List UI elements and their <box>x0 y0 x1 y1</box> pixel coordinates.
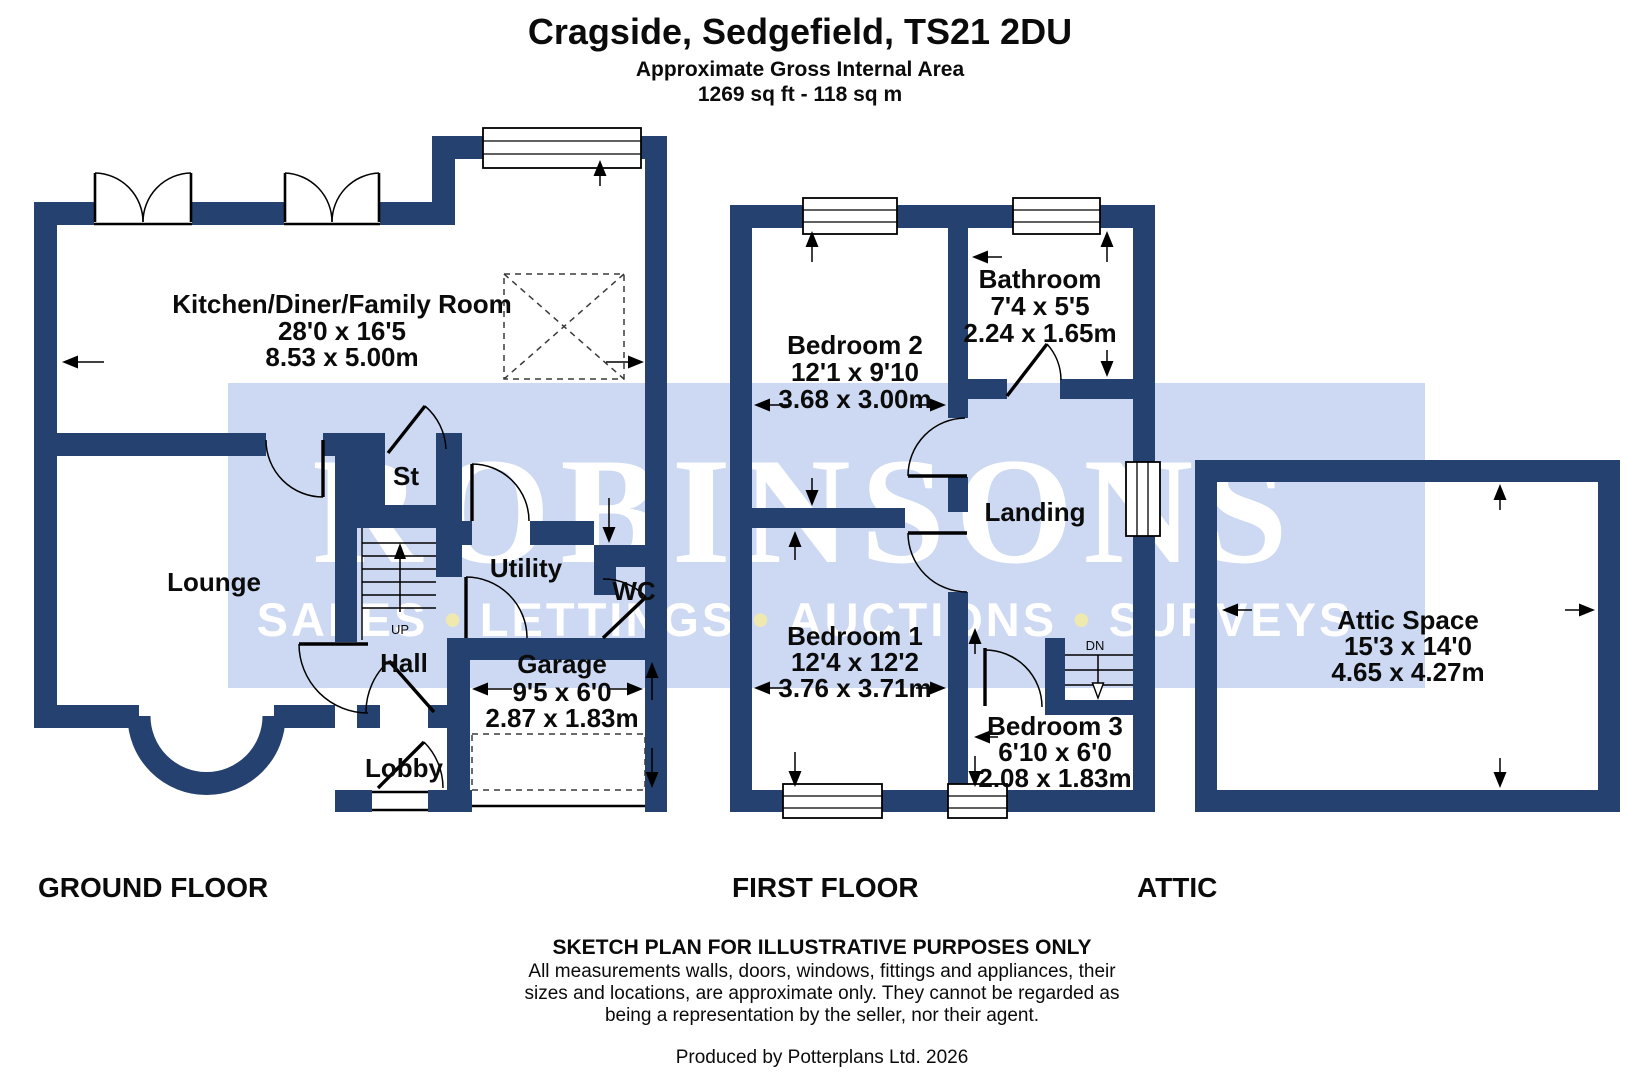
sketch-plan-note: SKETCH PLAN FOR ILLUSTRATIVE PURPOSES ON… <box>552 936 1091 959</box>
room-dim-kitchen-metric: 8.53 x 5.00m <box>265 342 418 372</box>
room-dim-attic-metric: 4.65 x 4.27m <box>1331 657 1484 687</box>
room-dim-bedroom2-imperial: 12'1 x 9'10 <box>791 357 919 387</box>
footer: SKETCH PLAN FOR ILLUSTRATIVE PURPOSES ON… <box>525 936 1120 1068</box>
skylight <box>504 274 624 379</box>
kitchen-window <box>483 128 641 168</box>
garage-door <box>472 734 645 806</box>
attic-title: ATTIC <box>1137 872 1217 903</box>
room-dim-bedroom2-metric: 3.68 x 3.00m <box>778 384 931 414</box>
bedroom1-window <box>783 784 882 818</box>
stairs-down-label: DN <box>1086 638 1105 653</box>
bathroom-window <box>1013 198 1100 234</box>
stairs-up-label: UP <box>391 622 409 637</box>
room-label-garage: Garage <box>517 649 607 679</box>
gross-area: 1269 sq ft - 118 sq m <box>698 83 902 106</box>
room-label-bedroom2: Bedroom 2 <box>787 330 923 360</box>
header: Cragside, Sedgefield, TS21 2DU Approxima… <box>528 11 1072 106</box>
room-dim-bedroom1-metric: 3.76 x 3.71m <box>778 673 931 703</box>
disclaimer-line-3: being a representation by the seller, no… <box>605 1005 1039 1026</box>
room-label-kitchen: Kitchen/Diner/Family Room <box>172 289 512 319</box>
french-door-2 <box>284 173 380 224</box>
bedroom2-window <box>803 198 897 234</box>
ground-floor-title: GROUND FLOOR <box>38 872 268 903</box>
floorplan-page: Cragside, Sedgefield, TS21 2DU Approxima… <box>0 0 1652 1080</box>
room-dim-bedroom3-metric: 2.08 x 1.83m <box>978 763 1131 793</box>
room-label-hall: Hall <box>380 648 428 678</box>
room-label-store: St <box>393 461 419 491</box>
room-label-lobby: Lobby <box>365 753 444 783</box>
room-dim-bathroom-metric: 2.24 x 1.65m <box>963 318 1116 348</box>
room-dim-garage-metric: 2.87 x 1.83m <box>485 703 638 733</box>
room-label-utility: Utility <box>490 553 563 583</box>
room-label-wc: WC <box>612 576 656 606</box>
landing-window <box>1126 462 1160 536</box>
floorplan-svg: Cragside, Sedgefield, TS21 2DU Approxima… <box>0 0 1652 1080</box>
first-floor-title: FIRST FLOOR <box>732 872 919 903</box>
room-label-landing: Landing <box>984 497 1085 527</box>
produced-by: Produced by Potterplans Ltd. 2026 <box>676 1047 969 1068</box>
french-door-1 <box>94 173 192 224</box>
room-label-bathroom: Bathroom <box>979 264 1102 294</box>
disclaimer-line-1: All measurements walls, doors, windows, … <box>528 961 1116 982</box>
disclaimer-line-2: sizes and locations, are approximate onl… <box>525 983 1120 1004</box>
room-dim-bathroom-imperial: 7'4 x 5'5 <box>990 291 1089 321</box>
page-title: Cragside, Sedgefield, TS21 2DU <box>528 11 1072 52</box>
bay-window <box>139 716 274 784</box>
room-label-lounge: Lounge <box>167 567 261 597</box>
page-subtitle: Approximate Gross Internal Area <box>636 58 965 81</box>
